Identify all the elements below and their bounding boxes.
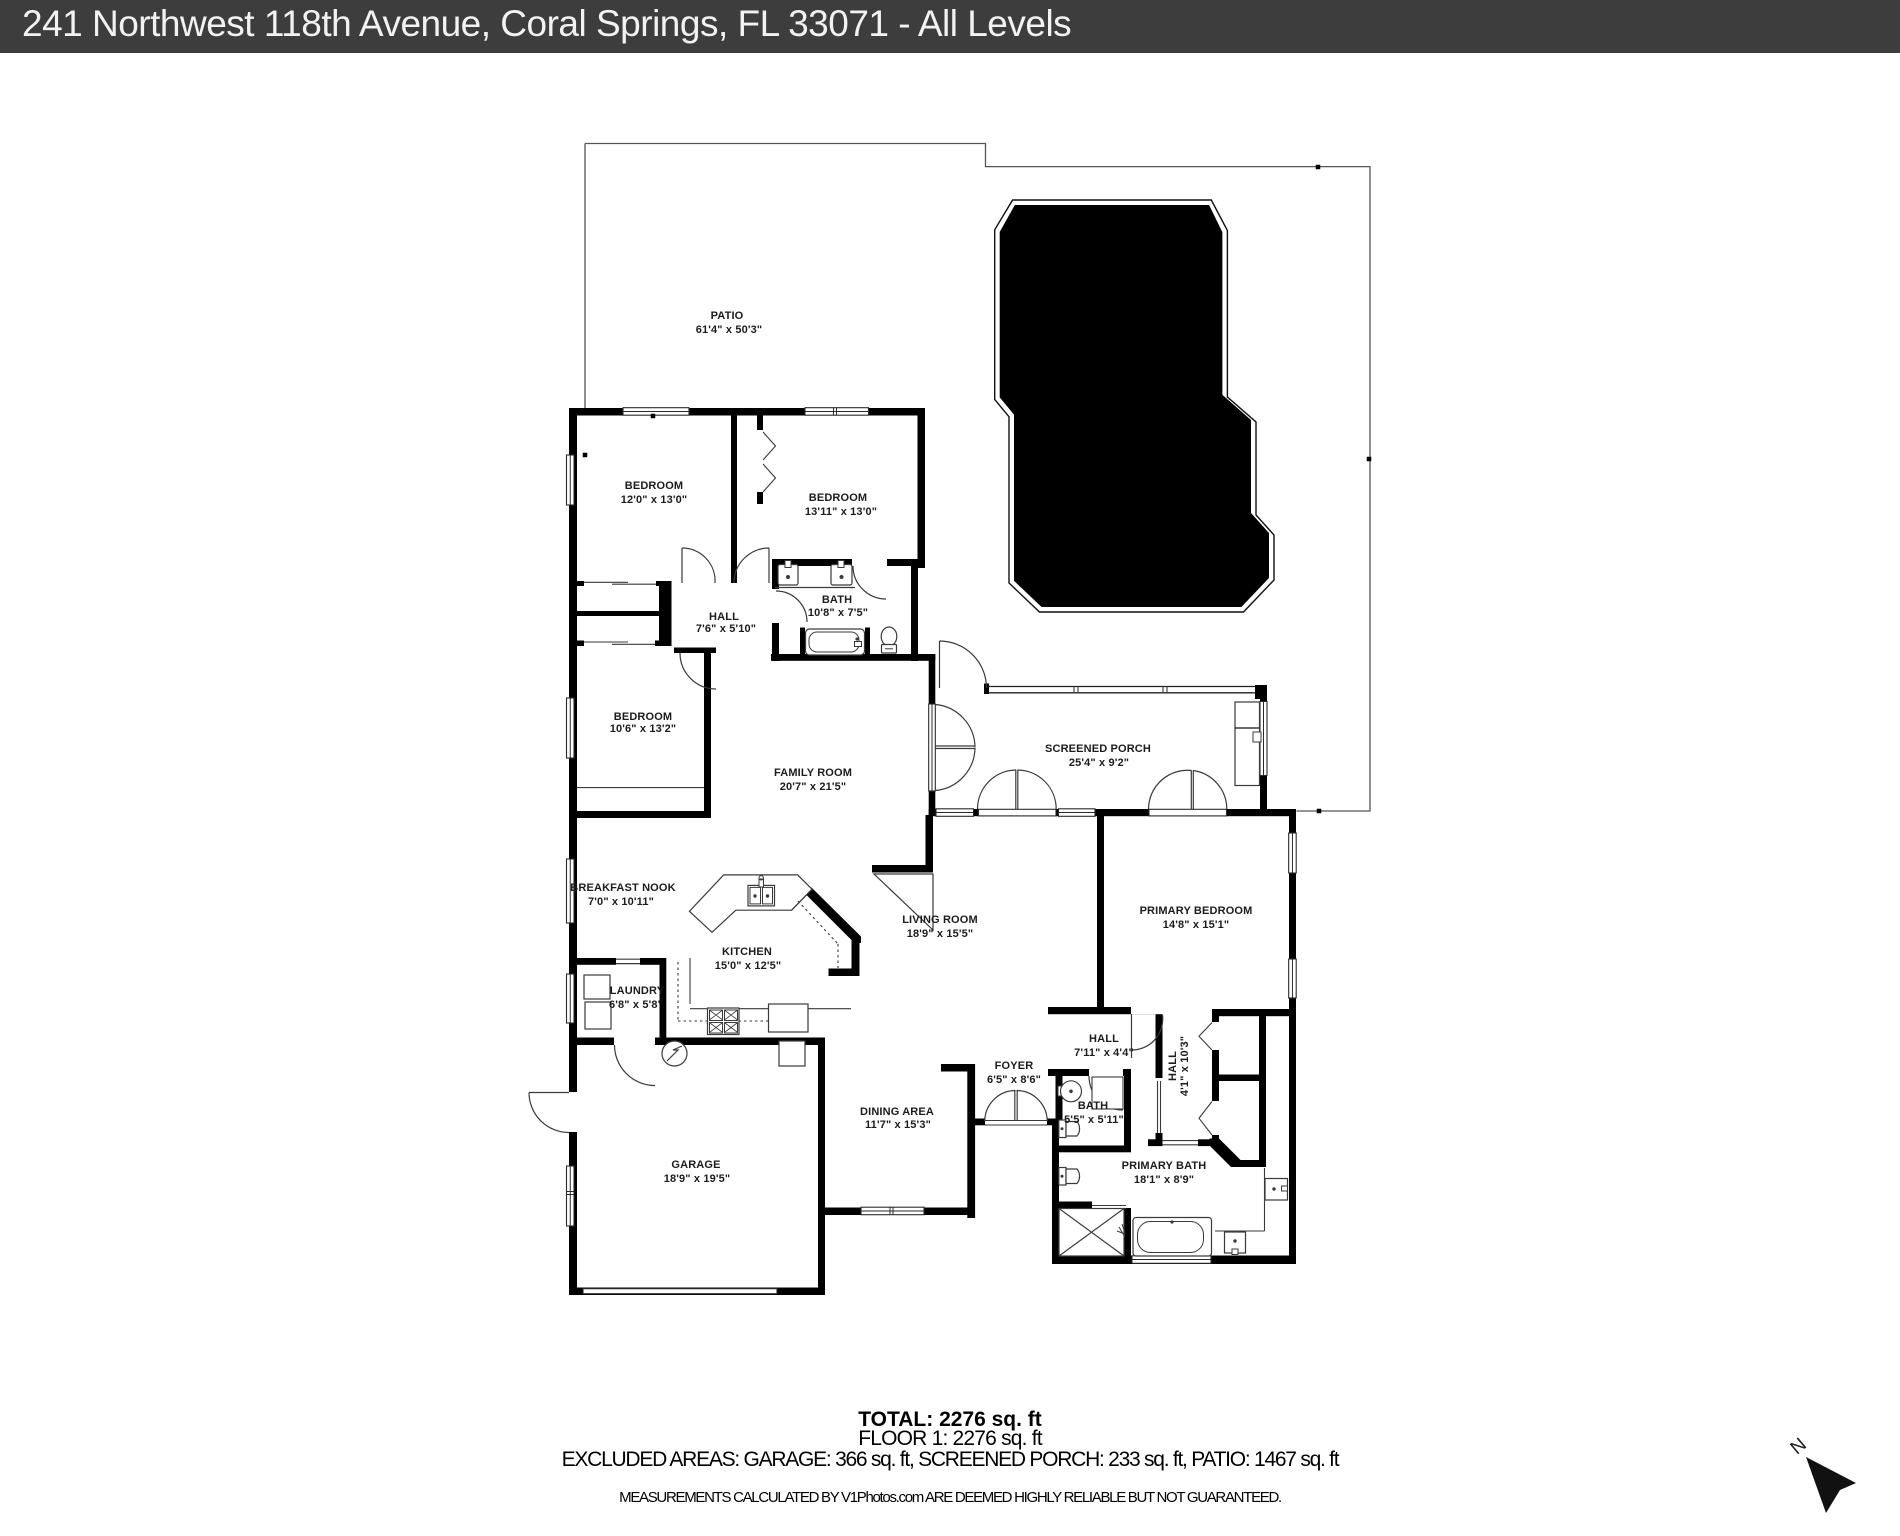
svg-text:15'0" x 12'5": 15'0" x 12'5" xyxy=(715,960,782,972)
svg-text:GARAGE: GARAGE xyxy=(671,1159,720,1171)
svg-text:61'4" x 50'3": 61'4" x 50'3" xyxy=(696,324,763,336)
svg-text:BEDROOM: BEDROOM xyxy=(614,711,673,723)
svg-text:KITCHEN: KITCHEN xyxy=(722,946,772,958)
svg-text:20'7" x 21'5": 20'7" x 21'5" xyxy=(780,781,847,793)
svg-text:18'9" x 19'5": 18'9" x 19'5" xyxy=(664,1173,731,1185)
svg-text:LIVING ROOM: LIVING ROOM xyxy=(902,914,978,926)
svg-text:14'8" x 15'1": 14'8" x 15'1" xyxy=(1163,919,1230,931)
svg-text:18'1" x 8'9": 18'1" x 8'9" xyxy=(1134,1174,1194,1186)
svg-text:PATIO: PATIO xyxy=(711,310,744,322)
svg-text:13'11" x 13'0": 13'11" x 13'0" xyxy=(805,506,877,518)
svg-text:PRIMARY BEDROOM: PRIMARY BEDROOM xyxy=(1140,905,1253,917)
svg-text:FOYER: FOYER xyxy=(995,1060,1034,1072)
svg-text:HALL: HALL xyxy=(1167,1051,1179,1081)
svg-text:HALL: HALL xyxy=(1089,1033,1119,1045)
svg-text:10'6" x 13'2": 10'6" x 13'2" xyxy=(610,723,677,735)
svg-text:LAUNDRY: LAUNDRY xyxy=(610,985,665,997)
svg-text:11'7" x 15'3": 11'7" x 15'3" xyxy=(865,1119,931,1131)
svg-text:18'9" x 15'5": 18'9" x 15'5" xyxy=(907,928,974,940)
svg-text:FAMILY ROOM: FAMILY ROOM xyxy=(774,767,852,779)
svg-text:PRIMARY BATH: PRIMARY BATH xyxy=(1122,1160,1207,1172)
svg-text:7'0" x 10'11": 7'0" x 10'11" xyxy=(588,896,654,908)
svg-text:BEDROOM: BEDROOM xyxy=(809,492,868,504)
svg-text:BATH: BATH xyxy=(822,594,852,606)
svg-text:BREAKFAST NOOK: BREAKFAST NOOK xyxy=(570,882,675,894)
svg-text:DINING AREA: DINING AREA xyxy=(860,1106,934,1118)
svg-text:HALL: HALL xyxy=(709,611,739,623)
svg-text:6'5" x 8'6": 6'5" x 8'6" xyxy=(987,1074,1041,1086)
svg-text:5'5" x 5'11": 5'5" x 5'11" xyxy=(1064,1114,1124,1126)
svg-text:7'11" x 4'4": 7'11" x 4'4" xyxy=(1074,1047,1134,1059)
svg-text:BATH: BATH xyxy=(1078,1100,1108,1112)
svg-text:4'1" x 10'3": 4'1" x 10'3" xyxy=(1179,1036,1191,1096)
svg-text:6'8" x 5'8": 6'8" x 5'8" xyxy=(609,999,663,1011)
svg-text:10'8" x 7'5": 10'8" x 7'5" xyxy=(808,607,868,619)
svg-text:BEDROOM: BEDROOM xyxy=(625,480,684,492)
svg-text:25'4" x 9'2": 25'4" x 9'2" xyxy=(1069,757,1129,769)
svg-text:7'6" x 5'10": 7'6" x 5'10" xyxy=(696,623,756,635)
svg-text:12'0" x 13'0": 12'0" x 13'0" xyxy=(621,494,688,506)
svg-text:SCREENED PORCH: SCREENED PORCH xyxy=(1045,743,1151,755)
